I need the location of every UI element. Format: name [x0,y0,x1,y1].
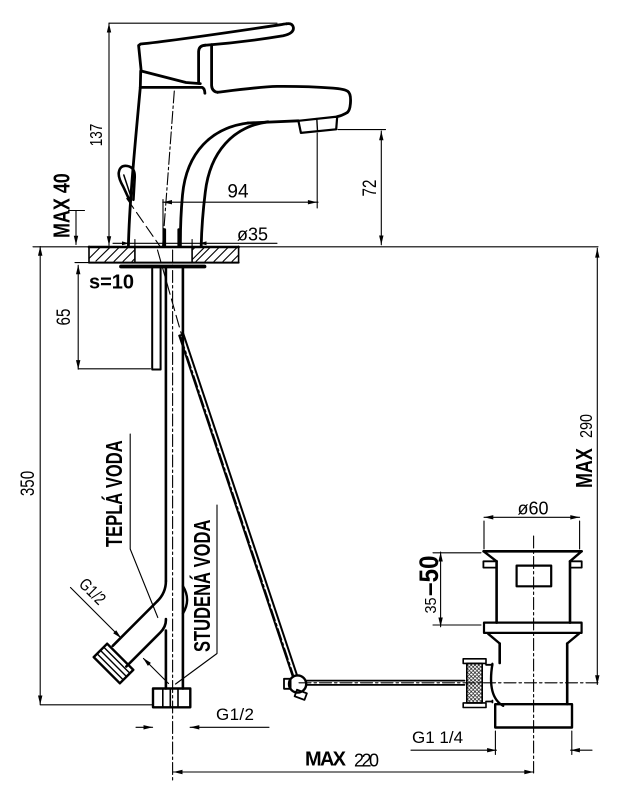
svg-text:STUDENÁ VODA: STUDENÁ VODA [189,520,215,652]
svg-text:–50: –50 [415,555,444,596]
svg-text:35: 35 [422,597,440,613]
svg-text:G1 1/4: G1 1/4 [412,728,463,747]
svg-text:G1/2: G1/2 [75,575,109,609]
svg-text:ø35: ø35 [237,225,268,245]
svg-text:TEPLÁ VODA: TEPLÁ VODA [101,440,127,547]
svg-text:MAX: MAX [572,448,598,488]
svg-text:65: 65 [52,309,74,326]
svg-text:350: 350 [16,471,38,496]
svg-text:MAX 40: MAX 40 [49,173,75,238]
svg-text:G1/2: G1/2 [216,705,254,724]
svg-text:72: 72 [358,180,380,197]
svg-text:220: 220 [354,751,379,771]
svg-text:s=10: s=10 [89,272,134,294]
svg-text:290: 290 [577,414,597,438]
svg-text:MAX: MAX [305,749,347,771]
svg-text:94: 94 [227,182,249,203]
svg-text:ø60: ø60 [517,499,548,519]
svg-text:137: 137 [87,124,106,147]
